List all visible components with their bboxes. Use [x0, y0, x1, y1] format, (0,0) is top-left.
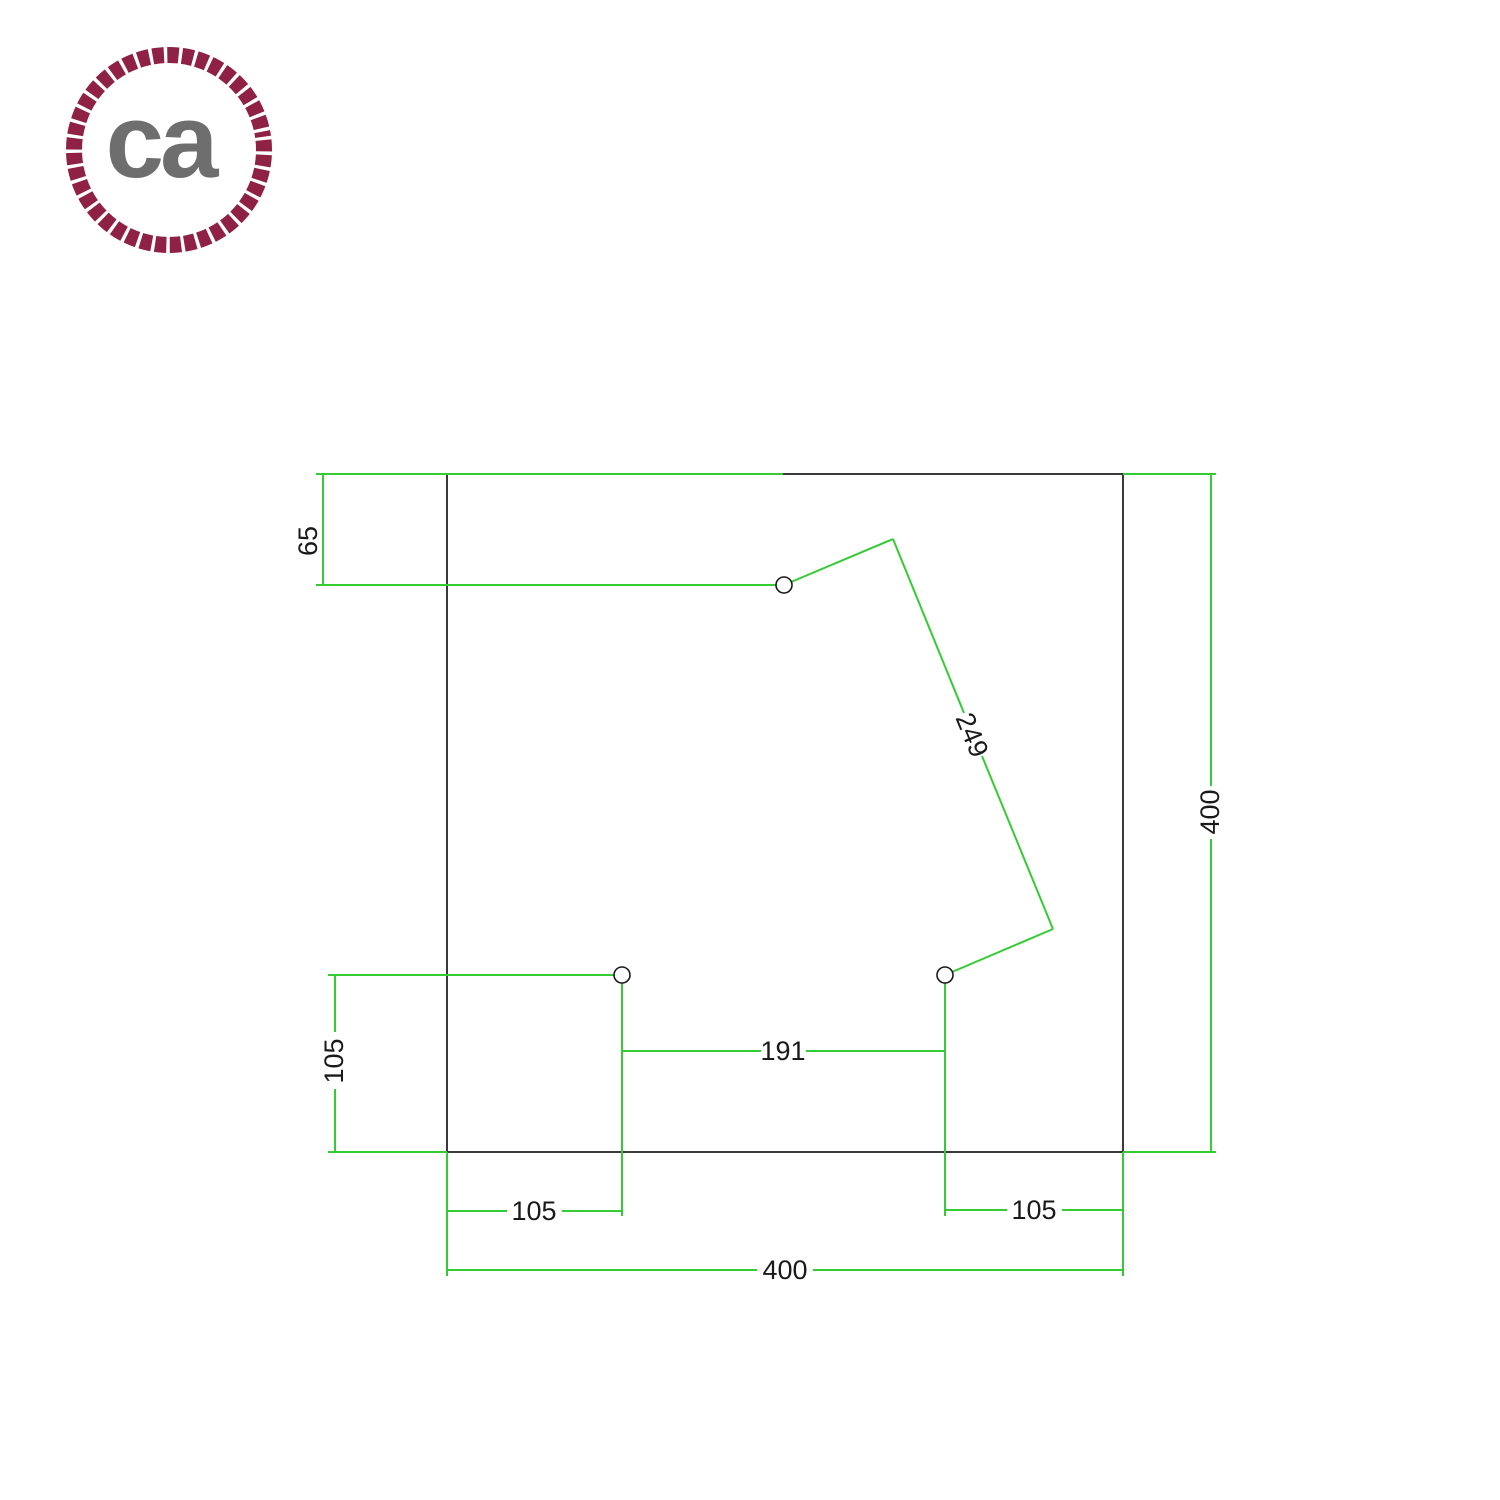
- dim-249-line-b: [982, 756, 1053, 929]
- logo-monogram: ca: [106, 83, 220, 200]
- dimension-191: [622, 983, 945, 1216]
- dim-249-extension-top: [791, 539, 893, 582]
- dimension-labels: 65 249 400 105 191 105 105 400: [293, 526, 1225, 1285]
- dim-label-105-left: 105: [319, 1038, 349, 1083]
- dim-label-249: 249: [950, 708, 995, 761]
- dim-label-105-bottom-left: 105: [511, 1196, 556, 1226]
- dimension-105-left: [328, 975, 614, 1152]
- drill-holes: [614, 577, 953, 983]
- dim-label-400-bottom: 400: [762, 1255, 807, 1285]
- dimension-249: [791, 539, 1053, 972]
- dim-label-191: 191: [760, 1036, 805, 1066]
- dim-label-65: 65: [293, 526, 323, 556]
- brand-logo: ca: [62, 43, 277, 258]
- dimension-65: [316, 474, 783, 585]
- hole-bottom-left: [614, 967, 630, 983]
- drilling-template-diagram: ca: [0, 0, 1500, 1500]
- hole-top: [776, 577, 792, 593]
- dim-label-105-bottom-right: 105: [1011, 1195, 1056, 1225]
- dim-label-400-right: 400: [1195, 789, 1225, 834]
- dim-249-extension-bottom: [952, 929, 1053, 972]
- dimension-lines: [316, 474, 1216, 1276]
- hole-bottom-right: [937, 967, 953, 983]
- dim-249-line-a: [893, 539, 964, 713]
